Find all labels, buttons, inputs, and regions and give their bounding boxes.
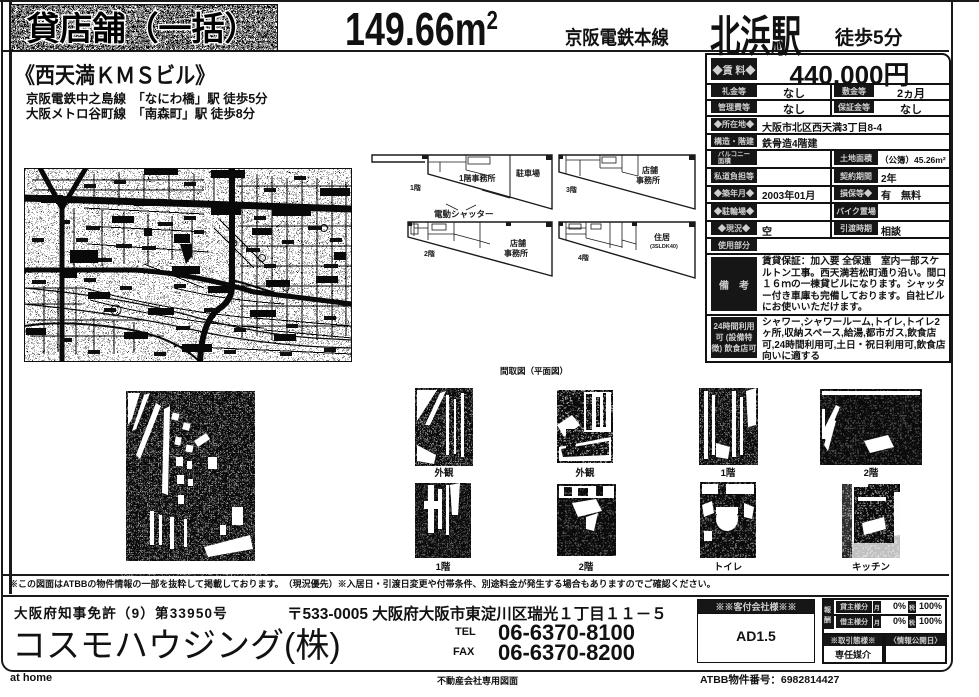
svg-text:店舗: 店舗	[642, 165, 658, 175]
svg-text:外観: 外観	[574, 467, 595, 479]
svg-text:1階: 1階	[436, 561, 451, 573]
svg-text:1階事務所: 1階事務所	[459, 173, 495, 183]
svg-text:事務所: 事務所	[636, 175, 660, 185]
svg-text:住居: 住居	[654, 232, 670, 242]
svg-text:事務所: 事務所	[504, 248, 528, 258]
svg-text:2階: 2階	[864, 467, 879, 479]
svg-text:1階: 1階	[410, 183, 421, 192]
svg-text:店舗: 店舗	[510, 238, 526, 248]
svg-text:トイレ: トイレ	[714, 562, 743, 573]
svg-text:2階: 2階	[424, 249, 435, 258]
svg-text:1階: 1階	[721, 467, 736, 479]
svg-text:電動シャッター: 電動シャッター	[434, 209, 494, 219]
svg-text:3階: 3階	[566, 185, 577, 194]
svg-text:駐車場: 駐車場	[516, 168, 540, 178]
svg-text:貸店舗（一括）: 貸店舗（一括）	[26, 10, 258, 47]
svg-text:4階: 4階	[578, 253, 589, 262]
svg-text:2階: 2階	[579, 561, 594, 573]
svg-text:(3SLDK40): (3SLDK40)	[650, 244, 678, 250]
svg-text:外観: 外観	[433, 467, 454, 479]
svg-text:キッチン: キッチン	[852, 562, 890, 573]
